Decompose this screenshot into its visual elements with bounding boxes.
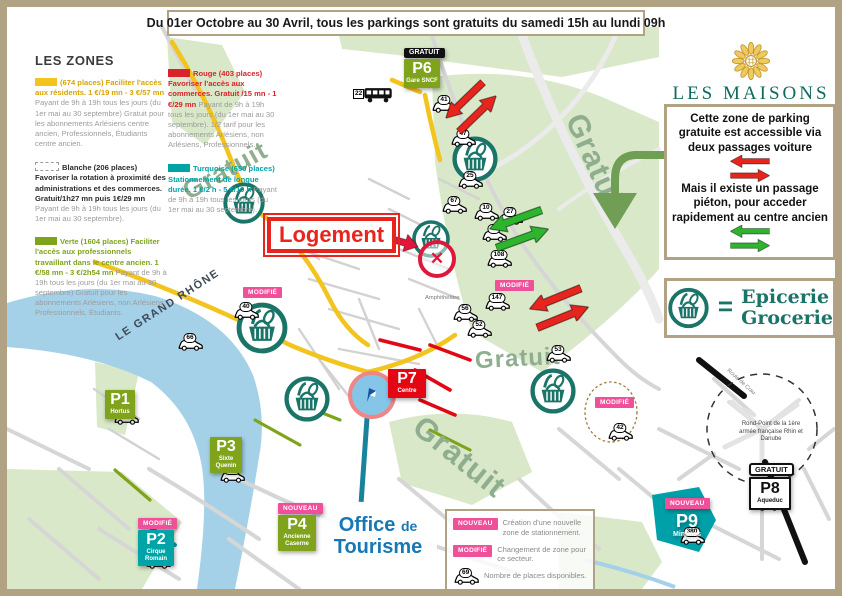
yellow-zone-swatch (35, 78, 57, 86)
free-parking-info-box: Cette zone de parking gratuite est acces… (664, 104, 836, 260)
places-text: Nombre de places disponibles. (484, 571, 587, 581)
white-zone-swatch (35, 162, 59, 171)
info-paragraph-pedestrian: Mais il existe un passage piéton, pour a… (671, 182, 829, 225)
grocery-basket-icon (529, 367, 577, 415)
sunflower-icon (731, 41, 771, 81)
key-row-places: 69 Nombre de places disponibles. (453, 571, 587, 587)
poi-logo-icon (363, 386, 381, 404)
parking-sign-p8[interactable]: GRATUIT P8Aqueduc (749, 459, 791, 510)
parking-capacity-icon: 42 (607, 427, 633, 441)
amphitheatre-label: Amphithéâtre (425, 295, 459, 301)
parking-capacity-icon: 25 (457, 175, 483, 189)
equals-sign: = (718, 291, 733, 322)
zone-yellow-entry: (674 places) Faciliter l'accès aux résid… (35, 78, 169, 149)
parking-capacity-icon: 52 (466, 324, 492, 338)
nouveau-text: Création d'une nouvelle zone de stationn… (503, 518, 587, 538)
turquoise-zone-swatch (168, 164, 190, 172)
white-zone-body: Payant de 9h à 19h tous les jours (du 1e… (35, 204, 161, 223)
modified-zone-tag: MODIFIÉ (595, 397, 634, 408)
zone-green-entry: Verte (1604 places) Faciliter l'accès au… (35, 237, 169, 318)
red-zone-swatch (168, 69, 190, 77)
roundabout-label: Rond-Point de la 1ère armée française Rh… (734, 421, 808, 444)
green-zone-swatch (35, 237, 57, 245)
car-capacity-icon: 69 (453, 571, 479, 587)
red-double-arrow-icon (727, 155, 773, 182)
modifie-tag: MODIFIÉ (453, 545, 492, 557)
no-access-x-marker: ✕ (418, 240, 456, 278)
parking-map-page: Du 01er Octobre au 30 Avril, tous les pa… (0, 0, 842, 596)
grocery-basket-icon (283, 375, 331, 423)
brand-title: LES MAISONS (665, 83, 837, 105)
parking-capacity-icon: 147 (484, 297, 510, 311)
grocery-label-en: Grocerie (741, 308, 833, 329)
modified-zone-tag: MODIFIÉ (495, 280, 534, 291)
yellow-zone-body: Payant de 9h à 19h tous les jours (du 1e… (35, 98, 164, 148)
grocery-label-fr: Epicerie (741, 287, 833, 308)
parking-capacity-icon: 66 (177, 337, 203, 351)
parking-capacity-icon: 40 (233, 306, 259, 320)
parking-sign-p7[interactable]: P7Centre (388, 369, 426, 398)
zones-legend-title: LES ZONES (35, 53, 169, 68)
zones-legend: LES ZONES (674 places) Faciliter l'accès… (35, 53, 169, 332)
tourism-office-label[interactable]: Office de Tourisme (319, 511, 437, 561)
nouveau-tag: NOUVEAU (453, 518, 498, 530)
modified-zone-tag: MODIFIÉ (243, 287, 282, 298)
grocery-legend-box: = Epicerie Grocerie (664, 278, 836, 338)
parking-sign-p3[interactable]: P3Sixte Quenin (210, 437, 242, 473)
key-row-modifie: MODIFIÉ Changement de zone pour ce secte… (453, 545, 587, 565)
parking-capacity-icon: 67 (441, 200, 467, 214)
zone-white-entry: Blanche (206 places) Favoriser la rotati… (35, 162, 169, 224)
zone-turquoise-entry: Turquoise (650 places) Stationnement de … (168, 164, 278, 215)
parking-sign-p1[interactable]: P1Hortus (105, 390, 135, 419)
banner-text: Du 01er Octobre au 30 Avril, tous les pa… (147, 16, 666, 30)
parking-sign-p9[interactable]: NOUVEAU P9Minimes (665, 492, 709, 542)
parking-sign-p4[interactable]: NOUVEAU P4Ancienne Caserne (278, 497, 316, 551)
top-banner: Du 01er Octobre au 30 Avril, tous les pa… (167, 10, 645, 36)
zone-red-entry: Rouge (403 places) Favoriser l'accès aux… (168, 69, 278, 150)
info-paragraph-car: Cette zone de parking gratuite est acces… (671, 112, 829, 155)
key-row-nouveau: NOUVEAU Création d'une nouvelle zone de … (453, 518, 587, 538)
parking-capacity-icon: 53 (545, 349, 571, 363)
modifie-text: Changement de zone pour ce secteur. (497, 545, 587, 565)
parking-sign-p6[interactable]: GRATUIT P6Gare SNCF (404, 41, 440, 88)
green-double-arrow-icon (727, 225, 773, 252)
pricing-legend: Rouge (403 places) Favoriser l'accès aux… (168, 69, 278, 229)
parking-sign-p2[interactable]: MODIFIÉ P2Cirque Romain (138, 512, 174, 566)
bus-line-number: 22 (353, 89, 364, 99)
logement-callout[interactable]: Logement (267, 217, 396, 253)
bus-stop-icon: 22 (363, 87, 393, 108)
map-key-box: NOUVEAU Création d'une nouvelle zone de … (445, 509, 595, 596)
grocery-basket-icon (667, 286, 710, 330)
